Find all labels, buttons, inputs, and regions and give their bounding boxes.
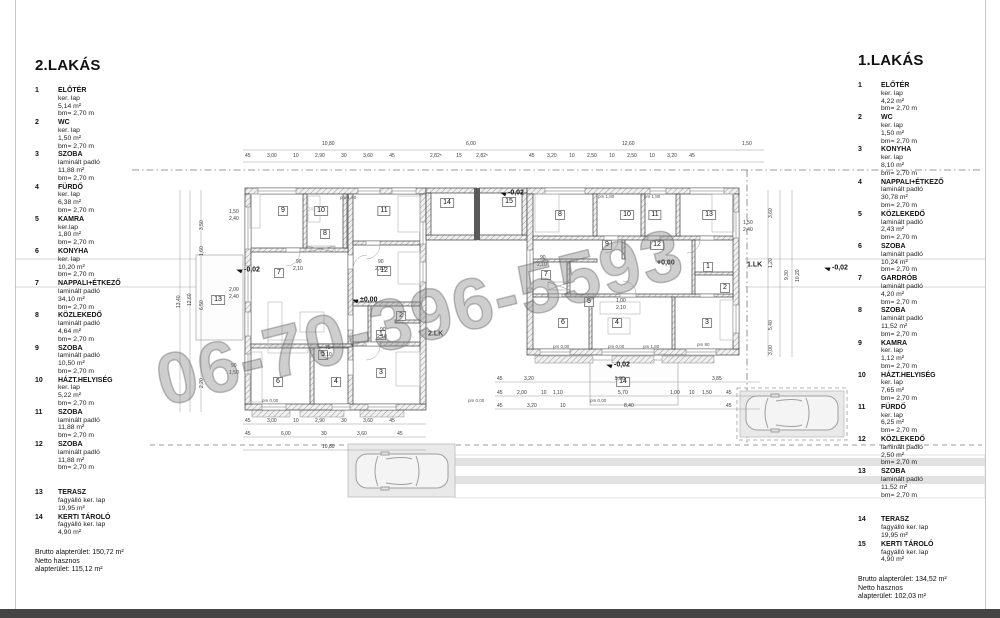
room-detail-line: laminált padló	[881, 283, 923, 291]
room-number: 5	[858, 211, 881, 242]
room-detail-line: fagyálló ker. lap	[58, 497, 105, 505]
room-name: ELŐTÉR	[58, 87, 94, 95]
left-house-walls	[245, 188, 426, 410]
room-detail-line: bm= 2,70 m	[881, 331, 923, 339]
room-detail-line: 2,43 m²	[881, 226, 925, 234]
totals-line: Netto hasznos	[858, 585, 988, 594]
room-details: GARDRÓBlaminált padló4,20 m²bm= 2,70 m	[881, 275, 923, 306]
room-list-item: 12KÖZLEKEDŐlaminált padló2,50 m²bm= 2,70…	[858, 436, 988, 467]
room-list-item: 9SZOBAlaminált padló10,50 m²bm= 2,70 m	[35, 345, 210, 376]
room-details: NAPPALI+ÉTKEZŐlaminált padló30,78 m²bm= …	[881, 179, 944, 210]
room-detail-line: ker. lap	[58, 191, 94, 199]
totals-line: Brutto alapterület: 150,72 m²	[35, 549, 210, 558]
room-details: ELŐTÉRker. lap5,14 m²bm= 2,70 m	[58, 87, 94, 118]
room-details: TERASZfagyálló ker. lap19,95 m²	[881, 516, 928, 539]
room-list-item: 6KONYHAker. lap10,20 m²bm= 2,70 m	[35, 248, 210, 279]
room-number: 14	[35, 514, 58, 537]
room-detail-line: 10,50 m²	[58, 360, 100, 368]
room-detail-line: ker.lap	[58, 224, 94, 232]
room-details: SZOBAlaminált padló11,52 m²bm= 2,70 m	[881, 468, 923, 499]
room-number: 3	[858, 146, 881, 177]
room-details: KERTI TÁROLÓfagyálló ker. lap4,90 m²	[58, 514, 111, 537]
room-detail-line: 10,24 m²	[881, 259, 923, 267]
room-detail-line: bm= 2,70 m	[58, 464, 100, 472]
room-detail-line: ker. lap	[58, 384, 113, 392]
room-detail-line: 11,88 m²	[58, 167, 100, 175]
room-detail-line: ker. lap	[881, 90, 917, 98]
room-name: SZOBA	[58, 151, 100, 159]
room-details: HÁZT.HELYISÉGker. lap7,65 m²bm= 2,70 m	[881, 372, 936, 403]
room-detail-line: 6,38 m²	[58, 199, 94, 207]
room-detail-line: bm= 2,70 m	[881, 266, 923, 274]
room-name: TERASZ	[881, 516, 928, 524]
room-details: TERASZfagyálló ker. lap19,95 m²	[58, 489, 105, 512]
room-list-item: 4FÜRDŐker. lap6,38 m²bm= 2,70 m	[35, 184, 210, 215]
room-detail-line: laminált padló	[881, 251, 923, 259]
room-detail-line: laminált padló	[58, 320, 102, 328]
room-details: KAMRAker. lap1,12 m²bm= 2,70 m	[881, 340, 917, 371]
room-detail-line: bm= 2,70 m	[881, 459, 925, 467]
room-name: KERTI TÁROLÓ	[881, 541, 934, 549]
room-number: 12	[858, 436, 881, 467]
room-number: 13	[35, 489, 58, 512]
left-apartment-totals: Brutto alapterület: 150,72 m²Netto haszn…	[35, 549, 210, 575]
room-name: HÁZT.HELYISÉG	[881, 372, 936, 380]
room-detail-line: 5,22 m²	[58, 392, 113, 400]
room-detail-line: fagyálló ker. lap	[881, 524, 928, 532]
room-list-item: 13SZOBAlaminált padló11,52 m²bm= 2,70 m	[858, 468, 988, 499]
room-detail-line: laminált padló	[58, 449, 100, 457]
room-detail-line: bm= 2,70 m	[58, 368, 100, 376]
room-number: 5	[35, 216, 58, 247]
room-list-item: 3KONYHAker. lap8,10 m²bm= 2,70 m	[858, 146, 988, 177]
room-detail-line: bm= 2,70 m	[58, 239, 94, 247]
room-detail-line: 4,20 m²	[881, 291, 923, 299]
right-apartment-title: 1.LAKÁS	[858, 52, 988, 69]
room-detail-line: 4,90 m²	[58, 529, 111, 537]
room-detail-line: laminált padló	[881, 476, 923, 484]
room-details: SZOBAlaminált padló11,88 m²bm= 2,70 m	[58, 151, 100, 182]
room-list-item: 2WCker. lap1,50 m²bm= 2,70 m	[858, 114, 988, 145]
room-number: 12	[35, 441, 58, 472]
room-name: WC	[58, 119, 94, 127]
room-detail-line: bm= 2,70 m	[58, 304, 121, 312]
room-detail-line: ker. lap	[881, 154, 917, 162]
room-details: WCker. lap1,50 m²bm= 2,70 m	[58, 119, 94, 150]
room-name: NAPPALI+ÉTKEZŐ	[881, 179, 944, 187]
room-details: ELŐTÉRker. lap4,22 m²bm= 2,70 m	[881, 82, 917, 113]
room-number: 10	[858, 372, 881, 403]
room-detail-line: 2,50 m²	[881, 452, 925, 460]
room-number: 7	[858, 275, 881, 306]
room-details: SZOBAlaminált padló10,50 m²bm= 2,70 m	[58, 345, 100, 376]
drawing-sheet: 9101187122154631314810111391271256431415…	[0, 0, 1000, 618]
room-details: HÁZT.HELYISÉGker. lap5,22 m²bm= 2,70 m	[58, 377, 113, 408]
room-detail-line: 6,25 m²	[881, 419, 917, 427]
room-details: KAMRAker.lap1,80 m²bm= 2,70 m	[58, 216, 94, 247]
room-name: KÖZLEKEDŐ	[881, 436, 925, 444]
room-details: KONYHAker. lap10,20 m²bm= 2,70 m	[58, 248, 94, 279]
room-details: SZOBAlaminált padló11,88 m²bm= 2,70 m	[58, 441, 100, 472]
room-name: SZOBA	[881, 468, 923, 476]
room-details: KERTI TÁROLÓfagyálló ker. lap4,90 m²	[881, 541, 934, 564]
room-details: FÜRDŐker. lap6,38 m²bm= 2,70 m	[58, 184, 94, 215]
room-name: ELŐTÉR	[881, 82, 917, 90]
room-details: FÜRDŐker. lap6,25 m²bm= 2,70 m	[881, 404, 917, 435]
room-detail-line: ker. lap	[881, 379, 936, 387]
room-details: KONYHAker. lap8,10 m²bm= 2,70 m	[881, 146, 917, 177]
room-list-item: 11FÜRDŐker. lap6,25 m²bm= 2,70 m	[858, 404, 988, 435]
room-number: 11	[35, 409, 58, 440]
room-detail-line: bm= 2,70 m	[58, 336, 102, 344]
room-details: KÖZLEKEDŐlaminált padló4,64 m²bm= 2,70 m	[58, 312, 102, 343]
room-list-item: 10HÁZT.HELYISÉGker. lap7,65 m²bm= 2,70 m	[858, 372, 988, 403]
room-name: SZOBA	[881, 243, 923, 251]
room-detail-line: ker. lap	[881, 347, 917, 355]
room-name: NAPPALI+ÉTKEZŐ	[58, 280, 121, 288]
room-list-item: 12SZOBAlaminált padló11,88 m²bm= 2,70 m	[35, 441, 210, 472]
room-number: 8	[35, 312, 58, 343]
room-detail-line: bm= 2,70 m	[881, 299, 923, 307]
room-list-item: 10HÁZT.HELYISÉGker. lap5,22 m²bm= 2,70 m	[35, 377, 210, 408]
room-details: NAPPALI+ÉTKEZŐlaminált padló34,10 m²bm= …	[58, 280, 121, 311]
room-name: FÜRDŐ	[881, 404, 917, 412]
room-list-item: 4NAPPALI+ÉTKEZŐlaminált padló30,78 m²bm=…	[858, 179, 988, 210]
room-list-item: 1ELŐTÉRker. lap4,22 m²bm= 2,70 m	[858, 82, 988, 113]
room-detail-line: 7,65 m²	[881, 387, 936, 395]
room-detail-line: 30,78 m²	[881, 194, 944, 202]
room-name: KONYHA	[58, 248, 94, 256]
room-name: FÜRDŐ	[58, 184, 94, 192]
room-detail-line: bm= 2,70 m	[58, 271, 94, 279]
room-list-item: 7NAPPALI+ÉTKEZŐlaminált padló34,10 m²bm=…	[35, 280, 210, 311]
room-number: 4	[858, 179, 881, 210]
room-list-item: 14TERASZfagyálló ker. lap19,95 m²	[858, 516, 988, 539]
room-number: 2	[35, 119, 58, 150]
room-number: 14	[858, 516, 881, 539]
room-detail-line: 11,88 m²	[58, 424, 100, 432]
room-name: KAMRA	[881, 340, 917, 348]
room-number: 9	[35, 345, 58, 376]
room-detail-line: laminált padló	[58, 288, 121, 296]
totals-line: alapterület: 102,03 m²	[858, 593, 988, 602]
room-detail-line: bm= 2,70 m	[58, 400, 113, 408]
room-list-item: 5KÖZLEKEDŐlaminált padló2,43 m²bm= 2,70 …	[858, 211, 988, 242]
room-details: SZOBAlaminált padló11,88 m²bm= 2,70 m	[58, 409, 100, 440]
room-detail-line: ker. lap	[881, 412, 917, 420]
room-list-item: 8SZOBAlaminált padló11,52 m²bm= 2,70 m	[858, 307, 988, 338]
room-detail-line: bm= 2,70 m	[58, 432, 100, 440]
room-details: SZOBAlaminált padló11,52 m²bm= 2,70 m	[881, 307, 923, 338]
room-number: 2	[858, 114, 881, 145]
room-detail-line: 1,50 m²	[881, 130, 917, 138]
room-number: 7	[35, 280, 58, 311]
left-apartment-schedule: 2.LAKÁS 1ELŐTÉRker. lap5,14 m²bm= 2,70 m…	[35, 57, 210, 575]
room-detail-line: laminált padló	[881, 315, 923, 323]
room-detail-line: 34,10 m²	[58, 296, 121, 304]
room-detail-line: 11,52 m²	[881, 484, 923, 492]
room-list-item: 15KERTI TÁROLÓfagyálló ker. lap4,90 m²	[858, 541, 988, 564]
room-name: KERTI TÁROLÓ	[58, 514, 111, 522]
room-number: 13	[858, 468, 881, 499]
room-list-item: 3SZOBAlaminált padló11,88 m²bm= 2,70 m	[35, 151, 210, 182]
room-detail-line: ker. lap	[58, 95, 94, 103]
room-list-item: 7GARDRÓBlaminált padló4,20 m²bm= 2,70 m	[858, 275, 988, 306]
room-number: 15	[858, 541, 881, 564]
room-number: 9	[858, 340, 881, 371]
left-apartment-title: 2.LAKÁS	[35, 57, 210, 74]
room-details: SZOBAlaminált padló10,24 m²bm= 2,70 m	[881, 243, 923, 274]
room-detail-line: bm= 2,70 m	[58, 110, 94, 118]
left-apartment-room-list: 1ELŐTÉRker. lap5,14 m²bm= 2,70 m2WCker. …	[35, 87, 210, 537]
room-list-item: 5KAMRAker.lap1,80 m²bm= 2,70 m	[35, 216, 210, 247]
room-detail-line: laminált padló	[881, 444, 925, 452]
room-name: GARDRÓB	[881, 275, 923, 283]
room-number: 8	[858, 307, 881, 338]
room-detail-line: laminált padló	[58, 159, 100, 167]
right-apartment-totals: Brutto alapterület: 134,52 m²Netto haszn…	[858, 576, 988, 602]
room-detail-line: 4,90 m²	[881, 556, 934, 564]
left-house-windows	[245, 188, 426, 410]
room-list-item: 8KÖZLEKEDŐlaminált padló4,64 m²bm= 2,70 …	[35, 312, 210, 343]
room-number: 3	[35, 151, 58, 182]
room-list-item: 11SZOBAlaminált padló11,88 m²bm= 2,70 m	[35, 409, 210, 440]
room-detail-line: bm= 2,70 m	[881, 234, 925, 242]
room-name: TERASZ	[58, 489, 105, 497]
room-detail-line: bm= 2,70 m	[881, 170, 917, 178]
room-detail-line: bm= 2,70 m	[58, 143, 94, 151]
room-number: 10	[35, 377, 58, 408]
room-detail-line: bm= 2,70 m	[881, 138, 917, 146]
room-number: 6	[35, 248, 58, 279]
room-detail-line: bm= 2,70 m	[58, 175, 100, 183]
room-name: SZOBA	[58, 441, 100, 449]
room-detail-line: 1,12 m²	[881, 355, 917, 363]
room-detail-line: 1,50 m²	[58, 135, 94, 143]
room-list-item: 9KAMRAker. lap1,12 m²bm= 2,70 m	[858, 340, 988, 371]
room-detail-line: bm= 2,70 m	[58, 207, 94, 215]
totals-line: Brutto alapterület: 134,52 m²	[858, 576, 988, 585]
room-detail-line: 4,64 m²	[58, 328, 102, 336]
room-list-item: 14KERTI TÁROLÓfagyálló ker. lap4,90 m²	[35, 514, 210, 537]
party-wall	[474, 188, 480, 240]
right-house-door-arcs	[605, 240, 700, 294]
room-details: KÖZLEKEDŐlaminált padló2,43 m²bm= 2,70 m	[881, 211, 925, 242]
room-detail-line: bm= 2,70 m	[881, 105, 917, 113]
room-detail-line: bm= 2,70 m	[881, 427, 917, 435]
room-name: KÖZLEKEDŐ	[58, 312, 102, 320]
room-detail-line: laminált padló	[881, 186, 944, 194]
room-detail-line: 5,14 m²	[58, 103, 94, 111]
room-detail-line: bm= 2,70 m	[881, 395, 936, 403]
room-detail-line: 19,95 m²	[881, 532, 928, 540]
room-list-item: 2WCker. lap1,50 m²bm= 2,70 m	[35, 119, 210, 150]
room-detail-line: bm= 2,70 m	[881, 202, 944, 210]
room-detail-line: fagyálló ker. lap	[881, 549, 934, 557]
room-list-item: 1ELŐTÉRker. lap5,14 m²bm= 2,70 m	[35, 87, 210, 118]
totals-line: Netto hasznos	[35, 558, 210, 567]
room-details: KÖZLEKEDŐlaminált padló2,50 m²bm= 2,70 m	[881, 436, 925, 467]
totals-line: alapterület: 115,12 m²	[35, 566, 210, 575]
room-name: WC	[881, 114, 917, 122]
room-number: 11	[858, 404, 881, 435]
room-detail-line: bm= 2,70 m	[881, 363, 917, 371]
room-detail-line: 19,95 m²	[58, 505, 105, 513]
room-number: 4	[35, 184, 58, 215]
terraces	[196, 255, 714, 417]
page-bottom-bar	[0, 609, 1000, 618]
room-detail-line: bm= 2,70 m	[881, 492, 923, 500]
room-detail-line: laminált padló	[881, 219, 925, 227]
room-detail-line: ker. lap	[881, 122, 917, 130]
room-name: KÖZLEKEDŐ	[881, 211, 925, 219]
room-detail-line: 4,22 m²	[881, 98, 917, 106]
room-number: 1	[35, 87, 58, 118]
right-apartment-schedule: 1.LAKÁS 1ELŐTÉRker. lap4,22 m²bm= 2,70 m…	[858, 52, 988, 602]
room-list-item: 6SZOBAlaminált padló10,24 m²bm= 2,70 m	[858, 243, 988, 274]
room-details: WCker. lap1,50 m²bm= 2,70 m	[881, 114, 917, 145]
room-number: 6	[858, 243, 881, 274]
room-detail-line: 11,52 m²	[881, 323, 923, 331]
room-name: SZOBA	[58, 345, 100, 353]
room-list-item: 13TERASZfagyálló ker. lap19,95 m²	[35, 489, 210, 512]
room-detail-line: 11,88 m²	[58, 457, 100, 465]
room-detail-line: laminált padló	[58, 352, 100, 360]
room-detail-line: laminált padló	[58, 417, 100, 425]
room-detail-line: 10,20 m²	[58, 264, 94, 272]
room-name: KAMRA	[58, 216, 94, 224]
room-detail-line: fagyálló ker. lap	[58, 521, 111, 529]
right-apartment-room-list: 1ELŐTÉRker. lap4,22 m²bm= 2,70 m2WCker. …	[858, 82, 988, 564]
room-name: SZOBA	[58, 409, 100, 417]
room-detail-line: 8,10 m²	[881, 162, 917, 170]
room-name: HÁZT.HELYISÉG	[58, 377, 113, 385]
room-number: 1	[858, 82, 881, 113]
room-detail-line: ker. lap	[58, 256, 94, 264]
room-detail-line: 1,80 m²	[58, 231, 94, 239]
room-name: KONYHA	[881, 146, 917, 154]
room-detail-line: ker. lap	[58, 127, 94, 135]
room-name: SZOBA	[881, 307, 923, 315]
